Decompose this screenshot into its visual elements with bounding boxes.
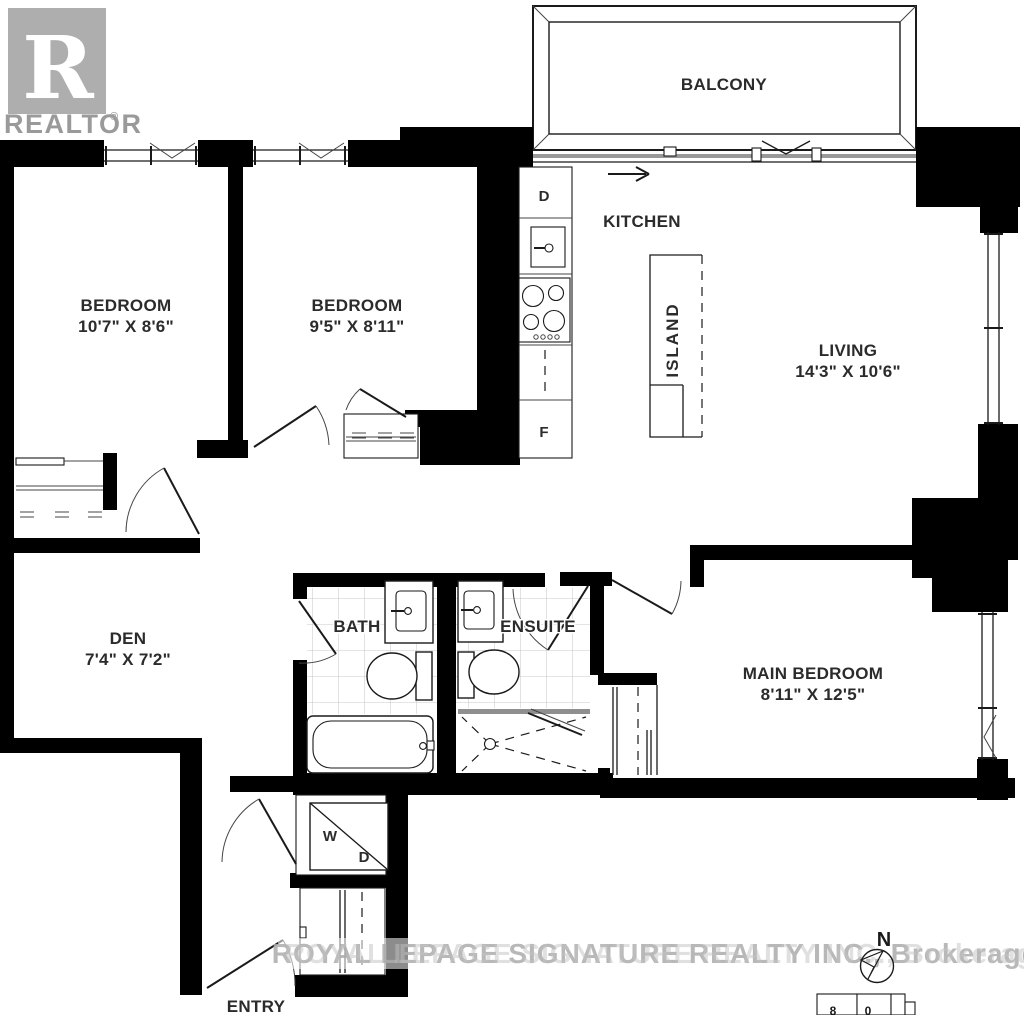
washer-label: W xyxy=(323,828,338,845)
bath-sink xyxy=(385,581,433,643)
brokerage-watermark-echo: ROYAL LEPAGE SIGNATURE REALTY INC., Brok… xyxy=(285,938,1024,969)
brokerage-watermark: ROYAL LEPAGE SIGNATURE REALTY INC., Brok… xyxy=(272,938,1024,969)
dishwasher-label: D xyxy=(539,188,550,205)
main-bedroom-dimensions: 8'11" X 12'5" xyxy=(761,685,866,704)
bedroom2-label: BEDROOM xyxy=(312,296,403,315)
den-label: DEN xyxy=(110,629,147,648)
ensuite-label: ENSUITE xyxy=(500,617,576,636)
walls xyxy=(0,127,1020,997)
scale-digit-8: 8 xyxy=(830,1004,837,1015)
scale-digit-0: 0 xyxy=(865,1004,872,1015)
living-dimensions: 14'3" X 10'6" xyxy=(795,362,901,381)
main-bedroom-window xyxy=(978,612,997,760)
stove-icon xyxy=(519,278,570,342)
bedroom1-label: BEDROOM xyxy=(81,296,172,315)
bedroom2-dimensions: 9'5" X 8'11" xyxy=(310,317,405,336)
bath-toilet xyxy=(367,652,432,700)
main-bedroom-door xyxy=(612,580,681,614)
scale-bar: 8 0 xyxy=(817,994,915,1015)
balcony-sliding-door xyxy=(533,141,916,162)
realtor-logo-letter: R xyxy=(22,18,94,119)
island-label: ISLAND xyxy=(663,302,682,377)
laundry-door xyxy=(222,799,296,864)
realtor-logo: R REALTOR ® xyxy=(4,8,143,139)
main-bedroom-closet xyxy=(613,685,657,775)
realtor-logo-text: REALTOR xyxy=(4,109,143,139)
fridge-label: F xyxy=(539,424,548,441)
main-bedroom-label: MAIN BEDROOM xyxy=(743,664,884,683)
floorplan-page: BALCONY KITCHEN ISLAND LIVING 14'3" X 10… xyxy=(0,0,1024,1015)
balcony-label: BALCONY xyxy=(681,75,768,94)
bath-label: BATH xyxy=(333,617,380,636)
ensuite-shower xyxy=(458,709,590,771)
living-label: LIVING xyxy=(819,341,877,360)
dryer-label: D xyxy=(359,849,370,866)
bathtub xyxy=(307,716,434,773)
registered-trademark-icon: ® xyxy=(110,111,118,123)
entry-label: ENTRY xyxy=(227,997,286,1015)
floorplan-drawing: BALCONY KITCHEN ISLAND LIVING 14'3" X 10… xyxy=(0,0,1024,1015)
bedroom2-door xyxy=(254,406,329,447)
bedroom2-window xyxy=(253,143,348,165)
bedroom1-closet xyxy=(16,458,103,517)
washer-dryer-icon xyxy=(296,795,388,875)
bedroom1-door xyxy=(126,468,199,534)
bedroom2-closet xyxy=(344,414,418,458)
entry-direction-arrow xyxy=(608,167,649,181)
kitchen-label: KITCHEN xyxy=(603,212,681,231)
ensuite-sink xyxy=(458,581,503,642)
north-label: N xyxy=(877,929,891,951)
bedroom1-window xyxy=(104,143,198,165)
bedroom1-dimensions: 10'7" X 8'6" xyxy=(78,317,174,336)
living-window xyxy=(984,232,1003,425)
den-dimensions: 7'4" X 7'2" xyxy=(85,650,171,669)
bedroom2-closet-door xyxy=(346,389,406,417)
kitchen-sink xyxy=(531,227,565,267)
